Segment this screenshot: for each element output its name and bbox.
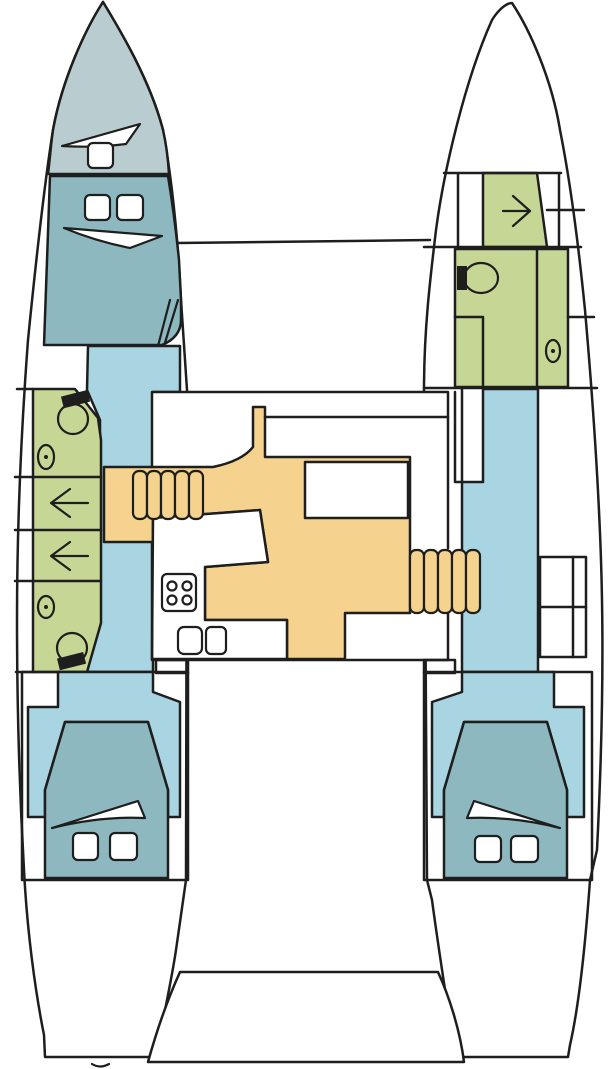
starboard-hull: [424, 3, 602, 1057]
starboard-cabinet: [540, 557, 586, 657]
floorplan-svg: [0, 0, 613, 1069]
port-aft-berth: [45, 722, 168, 878]
starboard-stair-tread: [452, 550, 466, 613]
saloon-table: [305, 462, 408, 518]
starboard-aft-berth: [444, 722, 567, 878]
galley-sink-2: [206, 627, 226, 654]
port-forward-pillow-2: [117, 195, 143, 220]
port-forward-pillow-1: [85, 195, 110, 220]
catamaran-floorplan: [0, 0, 613, 1069]
port-stern-trim-mark: [92, 1064, 109, 1067]
starboard-aft-pillow-2: [511, 836, 538, 862]
starboard-stair-tread: [466, 550, 480, 613]
starboard-toilet-tank: [457, 266, 467, 290]
port-stairs: [133, 471, 203, 519]
starboard-stair-tread: [424, 550, 438, 613]
stove-top: [162, 574, 196, 611]
starboard-aft-pillow-1: [475, 836, 501, 862]
starboard-basin-drain: [551, 349, 555, 353]
port-basin-forward-drain: [44, 455, 48, 459]
foredeck-front-edge: [178, 240, 430, 243]
starboard-stairs: [410, 550, 480, 613]
starboard-stair-tread: [438, 550, 452, 613]
port-stair-tread: [175, 471, 189, 519]
port-stair-tread: [161, 471, 175, 519]
port-aft-pillow-1: [73, 833, 98, 860]
stove: [162, 574, 196, 611]
starboard-toilet: [464, 263, 498, 293]
port-stair-tread: [189, 471, 203, 519]
port-toilet-forward: [58, 404, 88, 434]
port-basin-aft-drain: [44, 605, 48, 609]
port-forward-berth: [44, 176, 181, 345]
port-aft-pillow-2: [110, 833, 137, 860]
port-stair-tread: [147, 471, 161, 519]
port-stair-tread: [133, 471, 147, 519]
port-forepeak-pillow: [88, 143, 113, 168]
starboard-stair-tread: [410, 550, 424, 613]
stern-platform: [148, 972, 464, 1062]
galley-sink-1: [178, 627, 202, 654]
